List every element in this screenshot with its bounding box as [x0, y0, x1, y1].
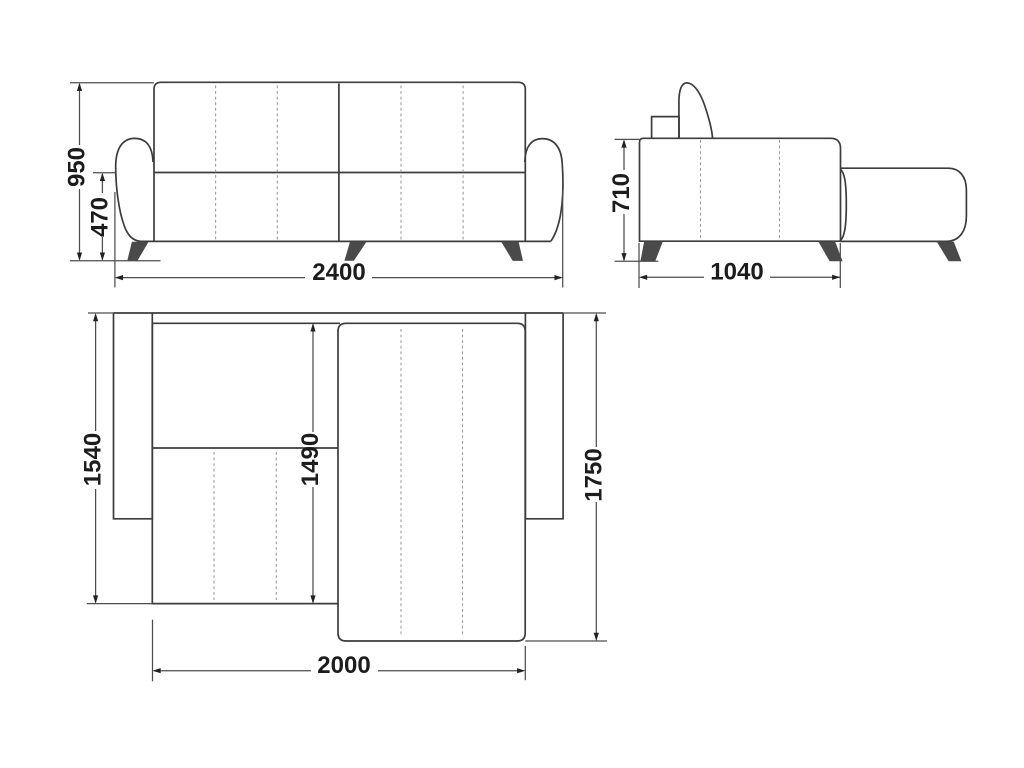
svg-text:1040: 1040	[710, 259, 763, 286]
svg-text:710: 710	[608, 173, 635, 213]
svg-text:1490: 1490	[297, 433, 324, 486]
svg-text:2000: 2000	[317, 652, 370, 679]
svg-text:2400: 2400	[312, 259, 365, 286]
svg-text:950: 950	[64, 147, 91, 187]
svg-text:470: 470	[86, 197, 113, 237]
svg-text:1750: 1750	[580, 448, 607, 501]
svg-text:1540: 1540	[80, 433, 107, 486]
